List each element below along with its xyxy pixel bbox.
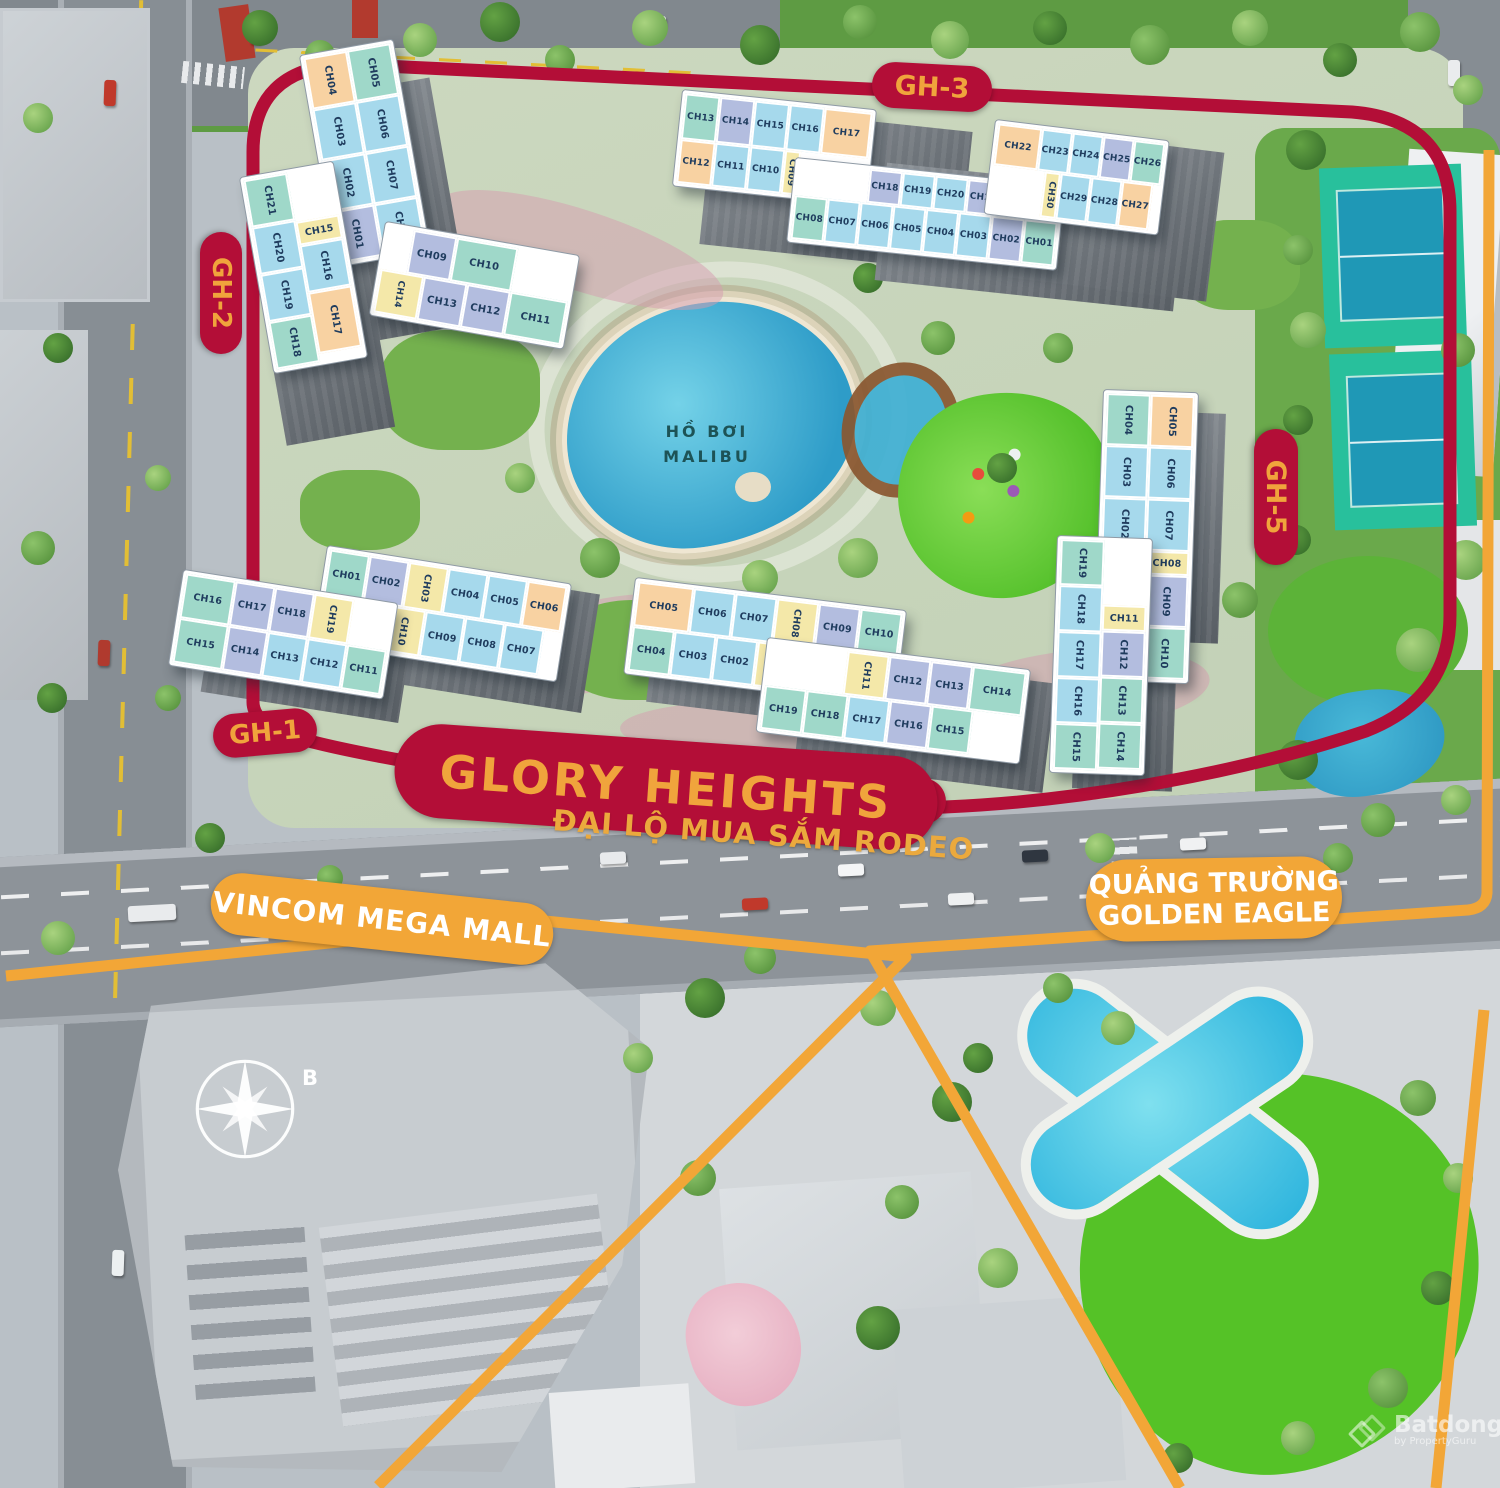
unit-ch18: CH18	[1058, 585, 1104, 633]
unit-ch08: CH08	[791, 195, 828, 242]
unit-ch03: CH03	[1103, 445, 1149, 499]
watermark: Batdongsan.com.vn by PropertyGuru	[1352, 1412, 1500, 1447]
unit-ch15: CH15	[1053, 723, 1099, 771]
unit-ch07: CH07	[823, 199, 860, 246]
unit-ch06: CH06	[521, 581, 568, 633]
unit-ch07: CH07	[730, 593, 777, 643]
unit-ch02: CH02	[711, 636, 758, 686]
unit-ch11: CH11	[340, 644, 387, 695]
unit-ch22: CH22	[993, 123, 1042, 170]
unit-ch05: CH05	[889, 205, 926, 252]
pill-gh2: GH-2	[200, 232, 242, 354]
unit-ch12: CH12	[884, 656, 931, 705]
unit-ch13: CH13	[926, 661, 973, 710]
unit-ch09: CH09	[406, 230, 457, 281]
unit-ch16: CH16	[885, 700, 932, 749]
unit-ch15: CH15	[172, 618, 228, 670]
unit-ch14: CH14	[968, 666, 1027, 716]
unit-ch14: CH14	[1097, 723, 1143, 771]
unit-ch17: CH17	[820, 108, 873, 159]
unit-ch07: CH07	[1145, 499, 1191, 553]
unit-ch19: CH19	[900, 172, 936, 209]
unit-ch16: CH16	[179, 573, 235, 625]
unit-ch04: CH04	[1105, 393, 1151, 447]
vincom-boundary	[6, 921, 906, 1486]
unit-ch13: CH13	[416, 276, 467, 327]
unit-ch18: CH18	[802, 690, 849, 739]
unit-ch16: CH16	[785, 104, 825, 153]
unit-ch15: CH15	[750, 101, 790, 150]
unit-ch17: CH17	[308, 285, 362, 354]
unit-ch06: CH06	[856, 202, 893, 249]
unit-ch05: CH05	[347, 43, 399, 102]
site-plan-map: B HỒ BƠIMALIBU CH04CH03	[0, 0, 1500, 1488]
unit-ch19: CH19	[760, 685, 807, 734]
unit-ch13: CH13	[1099, 677, 1145, 725]
unit-ch11: CH11	[1102, 605, 1147, 633]
unit-ch11: CH11	[843, 651, 890, 700]
unit-ch21: CH21	[243, 173, 295, 228]
unit-ch11: CH11	[711, 143, 750, 190]
unit-ch13: CH13	[681, 93, 721, 142]
unit-ch27: CH27	[1117, 181, 1153, 230]
unit-ch01: CH01	[1020, 219, 1057, 266]
unit-ch06: CH06	[356, 94, 408, 153]
unit-ch17: CH17	[843, 695, 890, 744]
unit-ch02: CH02	[987, 216, 1024, 263]
unit-ch06: CH06	[689, 588, 736, 638]
unit-ch04: CH04	[922, 209, 959, 256]
unit-ch17: CH17	[229, 581, 276, 632]
unit-ch06: CH06	[1147, 447, 1193, 501]
building-gh5-bottom: CH19CH18CH17CH16CH15 CH11CH12CH13CH14	[1050, 536, 1152, 775]
unit-ch26: CH26	[1129, 140, 1165, 185]
unit-ch17: CH17	[1056, 631, 1102, 679]
unit-ch07: CH07	[498, 624, 545, 676]
unit-ch19: CH19	[1059, 539, 1105, 587]
pill-gh5: GH-5	[1254, 429, 1298, 565]
unit-ch12: CH12	[460, 284, 511, 335]
unit-ch04: CH04	[628, 626, 675, 676]
unit-ch03: CH03	[669, 631, 716, 681]
pill-gh3: GH-3	[871, 61, 993, 113]
unit-ch11: CH11	[503, 292, 568, 345]
golden-eagle-square-label: QUẢNG TRƯỜNG GOLDEN EAGLE	[1085, 856, 1342, 942]
batdongsan-logo-icon	[1352, 1416, 1386, 1446]
unit-ch16: CH16	[1054, 677, 1100, 725]
unit-ch10: CH10	[746, 146, 785, 193]
unit-ch14: CH14	[716, 97, 756, 146]
unit-ch13: CH13	[261, 632, 308, 683]
unit-ch03: CH03	[955, 212, 992, 259]
golden-eagle-boundary	[870, 150, 1489, 1488]
unit-ch07: CH07	[365, 146, 417, 205]
unit-ch14: CH14	[373, 269, 424, 320]
unit-ch12: CH12	[676, 139, 715, 186]
unit-ch12: CH12	[1100, 631, 1146, 679]
unit-ch16: CH16	[300, 238, 352, 293]
unit-ch19: CH19	[308, 594, 355, 645]
unit-ch20: CH20	[932, 176, 968, 213]
unit-ch15: CH15	[927, 705, 974, 754]
unit-ch18: CH18	[867, 169, 903, 206]
unit-ch05: CH05	[633, 581, 694, 632]
unit-ch05: CH05	[1149, 395, 1195, 449]
